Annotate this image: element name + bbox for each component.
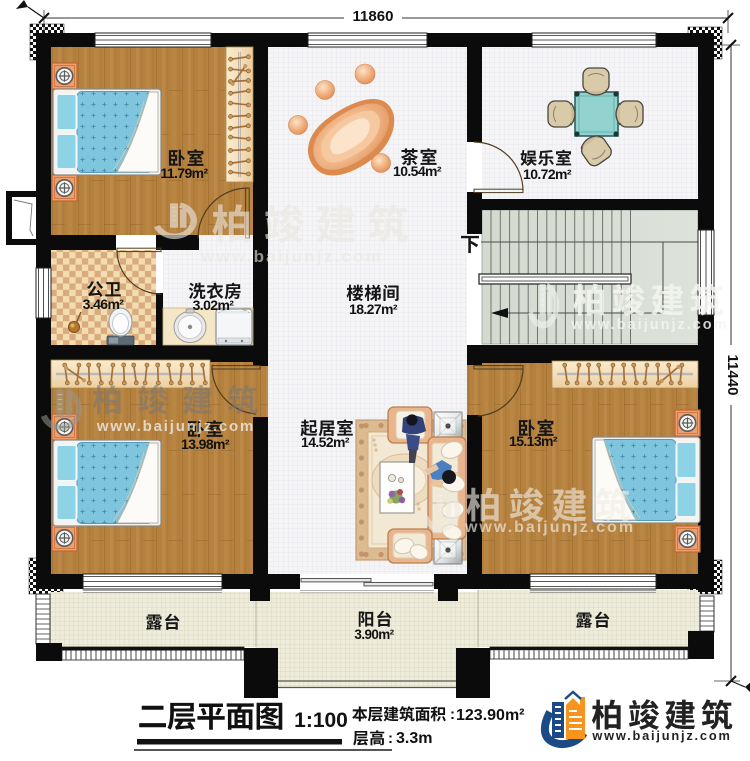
svg-text:1:100: 1:100 bbox=[294, 709, 348, 732]
svg-text:www.baijunjz.com: www.baijunjz.com bbox=[96, 418, 255, 435]
svg-text:3.46m²: 3.46m² bbox=[83, 296, 125, 312]
svg-text::: : bbox=[450, 706, 455, 723]
svg-text:14.52m²: 14.52m² bbox=[301, 434, 350, 450]
svg-text:www.baijunjz.com: www.baijunjz.com bbox=[200, 247, 383, 266]
svg-text:11440: 11440 bbox=[724, 355, 741, 396]
svg-text:11860: 11860 bbox=[353, 8, 394, 25]
svg-text:3.90m²: 3.90m² bbox=[354, 627, 394, 642]
svg-text:3.3m: 3.3m bbox=[396, 730, 432, 747]
svg-text:3.02m²: 3.02m² bbox=[193, 297, 235, 313]
svg-text:11.79m²: 11.79m² bbox=[160, 165, 208, 181]
svg-text:www.baijunjz.com: www.baijunjz.com bbox=[464, 519, 635, 536]
svg-text::: : bbox=[388, 730, 393, 747]
svg-text:www.baijunjz.com: www.baijunjz.com bbox=[591, 728, 731, 743]
svg-text:10.54m²: 10.54m² bbox=[393, 163, 442, 179]
svg-text:15.13m²: 15.13m² bbox=[509, 433, 558, 449]
svg-text:13.98m²: 13.98m² bbox=[181, 436, 230, 452]
svg-text:18.27m²: 18.27m² bbox=[349, 301, 398, 317]
svg-text:123.90m²: 123.90m² bbox=[456, 707, 525, 724]
svg-text:www.baijunjz.com: www.baijunjz.com bbox=[570, 317, 728, 333]
svg-text:10.72m²: 10.72m² bbox=[523, 166, 572, 182]
